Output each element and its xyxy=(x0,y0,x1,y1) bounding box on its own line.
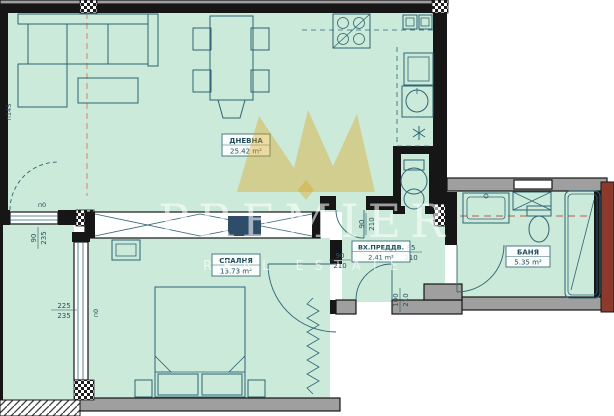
room-name: БАНЯ xyxy=(517,249,539,257)
shaft-hatch xyxy=(80,0,97,13)
adjacent-structure xyxy=(601,182,614,312)
dim-denominator: 235 xyxy=(40,231,48,244)
dim-numerator: 225 xyxy=(57,302,70,310)
parapet-annotation: п0 xyxy=(38,201,46,209)
wall xyxy=(0,0,448,4)
watermark-tagline: REAL ESTATE xyxy=(203,259,409,274)
floor-plan-drawing: 90 235 225 235 90 210 90 210 85 210 100 … xyxy=(0,0,614,416)
wall xyxy=(336,300,356,314)
crown-icon xyxy=(237,110,375,192)
vent-window xyxy=(514,180,552,189)
terrace-door-window xyxy=(10,212,58,224)
dim-denominator: 210 xyxy=(402,293,410,306)
wall xyxy=(0,225,3,400)
parapet-annotation: п145 xyxy=(5,104,13,121)
terrace-edge-hatch xyxy=(0,400,80,416)
room-area: 5.35 m² xyxy=(514,259,542,267)
wall xyxy=(0,210,10,225)
wall xyxy=(0,4,448,13)
watermark-brand: PREMIER xyxy=(158,194,454,248)
dim-denominator: 235 xyxy=(57,312,70,320)
parapet-annotation: п0 xyxy=(92,309,100,317)
wall xyxy=(72,232,90,242)
floor-plan: 90 235 225 235 90 210 90 210 85 210 100 … xyxy=(0,0,614,416)
wall xyxy=(447,297,605,310)
wall xyxy=(78,398,340,411)
dim-numerator: 100 xyxy=(392,293,400,306)
shaft-hatch xyxy=(432,0,448,13)
room-label-bath: БАНЯ 5.35 m² xyxy=(506,246,550,267)
column-hatch xyxy=(74,380,94,400)
wall xyxy=(424,284,462,300)
dim-numerator: 90 xyxy=(30,234,38,243)
bedroom-window xyxy=(74,242,88,380)
